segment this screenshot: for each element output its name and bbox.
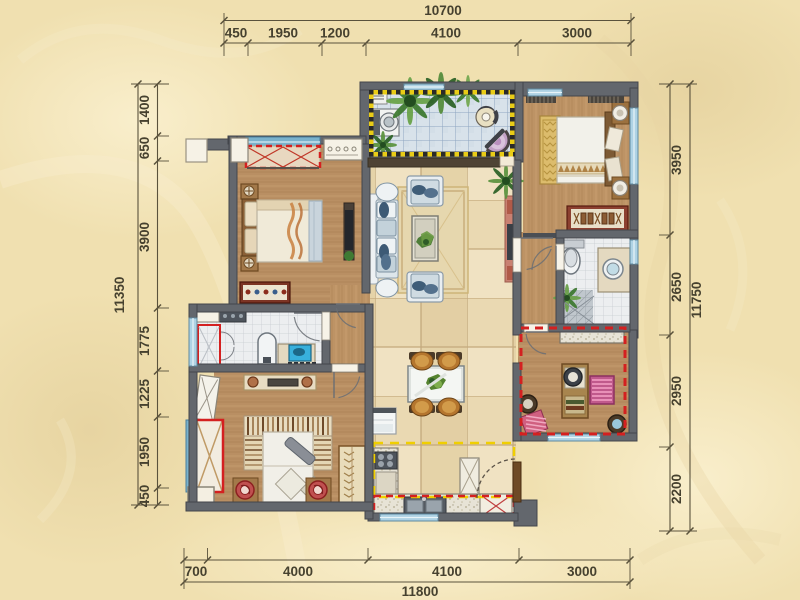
svg-text:11350: 11350: [112, 277, 127, 314]
svg-text:4100: 4100: [432, 564, 462, 579]
svg-text:1200: 1200: [320, 26, 350, 41]
svg-text:3000: 3000: [562, 26, 592, 41]
svg-text:450: 450: [137, 485, 152, 508]
svg-text:4000: 4000: [283, 564, 313, 579]
svg-text:2950: 2950: [669, 376, 684, 406]
svg-text:1950: 1950: [268, 26, 298, 41]
svg-text:3900: 3900: [137, 222, 152, 252]
svg-text:1225: 1225: [137, 378, 152, 409]
svg-text:4100: 4100: [431, 26, 461, 41]
svg-text:1950: 1950: [137, 437, 152, 467]
svg-text:11800: 11800: [402, 584, 439, 599]
svg-text:1775: 1775: [137, 325, 152, 356]
svg-text:1400: 1400: [137, 95, 152, 125]
svg-text:10700: 10700: [424, 3, 462, 18]
svg-text:650: 650: [137, 137, 152, 160]
svg-text:700: 700: [185, 564, 208, 579]
svg-text:3950: 3950: [669, 145, 684, 175]
svg-text:3000: 3000: [567, 564, 597, 579]
svg-text:2650: 2650: [669, 272, 684, 302]
svg-text:2200: 2200: [669, 474, 684, 504]
svg-text:450: 450: [225, 26, 248, 41]
svg-text:11750: 11750: [689, 282, 704, 319]
